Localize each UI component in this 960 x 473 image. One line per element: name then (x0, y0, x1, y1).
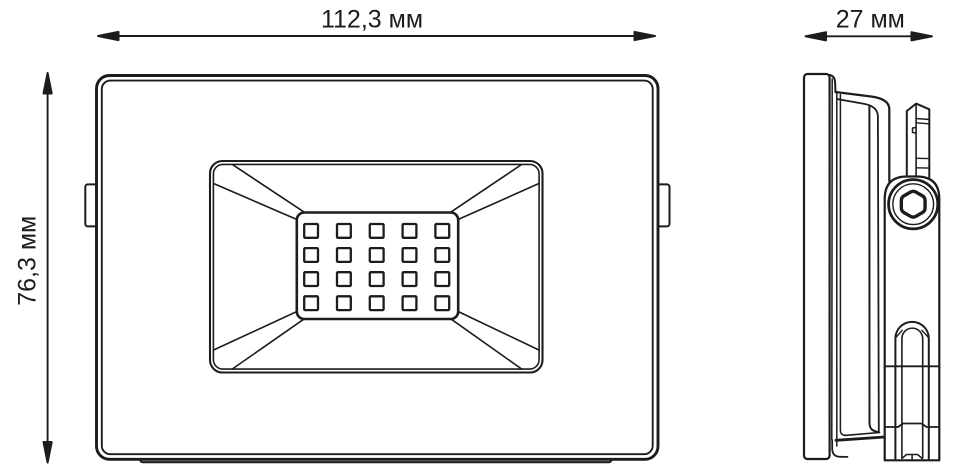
svg-text:112,3 мм: 112,3 мм (321, 6, 423, 34)
svg-text:27 мм: 27 мм (836, 6, 905, 34)
svg-text:76,3 мм: 76,3 мм (13, 216, 41, 306)
